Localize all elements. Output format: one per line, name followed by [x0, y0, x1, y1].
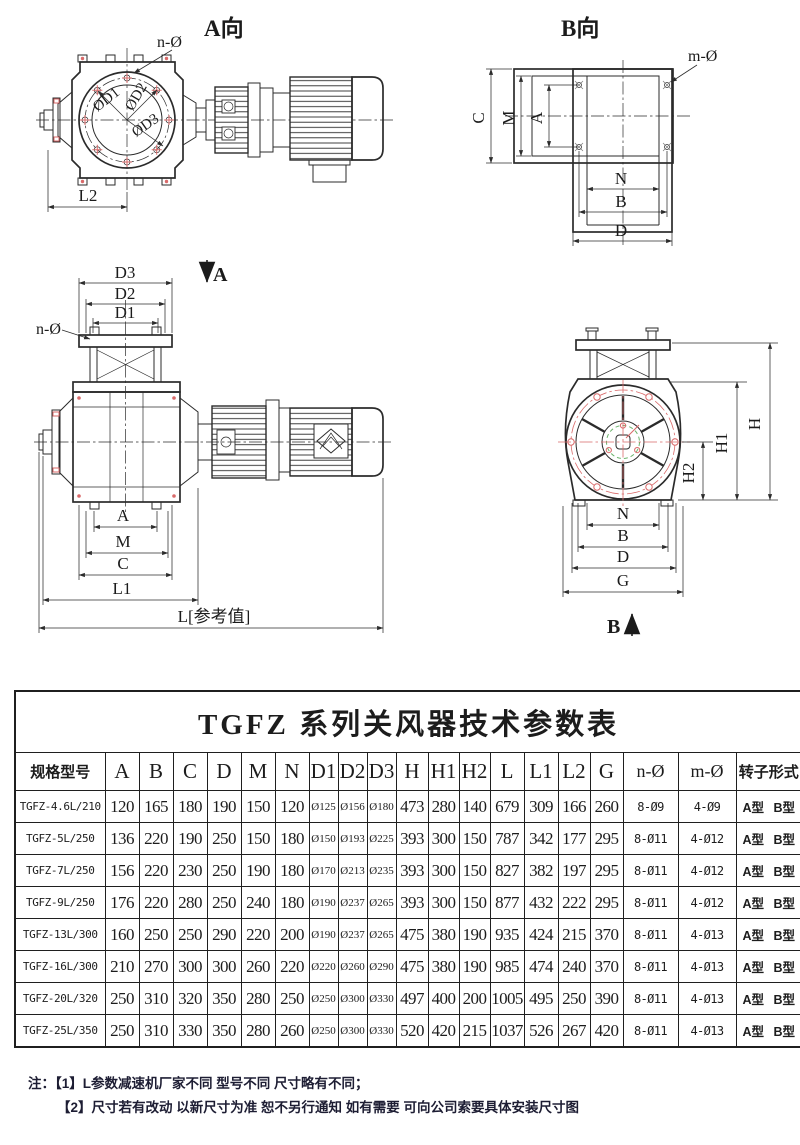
- side-view-drawing: H H1 H2 N B D G B: [558, 328, 778, 638]
- value-cell: 8-Ø11: [623, 823, 678, 855]
- dim-label-a-front: A: [117, 506, 130, 525]
- value-cell: 280: [173, 887, 207, 919]
- value-cell: 787: [490, 823, 524, 855]
- view-a-title: A向: [204, 15, 244, 41]
- value-cell: 4-Ø13: [678, 1015, 736, 1048]
- value-cell: 176: [105, 887, 139, 919]
- dim-label-l2: L2: [79, 186, 98, 205]
- value-cell: 877: [490, 887, 524, 919]
- value-cell: 474: [524, 951, 558, 983]
- value-cell: 220: [139, 855, 173, 887]
- column-header: L: [490, 753, 524, 791]
- value-cell: 190: [459, 951, 490, 983]
- value-cell: Ø290: [367, 951, 396, 983]
- front-view-drawing: A D3 D2 D1 n-Ø: [34, 260, 392, 633]
- motor-logo: [314, 424, 348, 458]
- dim-label-c-front: C: [117, 554, 128, 573]
- dim-label-d3: D3: [115, 263, 136, 282]
- value-cell: 200: [459, 983, 490, 1015]
- value-cell: 4-Ø9: [678, 791, 736, 823]
- value-cell: Ø260: [338, 951, 367, 983]
- value-cell: 8-Ø11: [623, 951, 678, 983]
- value-cell: 4-Ø13: [678, 983, 736, 1015]
- value-cell: 165: [139, 791, 173, 823]
- note-2: 【2】尺寸若有改动 以新尺寸为准 恕不另行通知 如有需要 可向公司索要具体安装尺…: [57, 1096, 579, 1120]
- value-cell: 280: [241, 983, 275, 1015]
- column-header: N: [275, 753, 309, 791]
- dim-label-m: M: [499, 110, 518, 125]
- value-cell: 310: [139, 1015, 173, 1048]
- dim-label-h1: H1: [712, 433, 731, 454]
- dim-label-m-holes: m-Ø: [688, 48, 717, 65]
- value-cell: 190: [173, 823, 207, 855]
- dim-label-l1: L1: [113, 579, 132, 598]
- table-title: TGFZ 系列关风器技术参数表: [15, 691, 800, 753]
- value-cell: 240: [241, 887, 275, 919]
- table-row: TGFZ-4.6L/210120165180190150120Ø125Ø156Ø…: [15, 791, 800, 823]
- value-cell: 260: [590, 791, 623, 823]
- value-cell: 370: [590, 919, 623, 951]
- value-cell: Ø300: [338, 983, 367, 1015]
- value-cell: 1037: [490, 1015, 524, 1048]
- value-cell: 150: [241, 791, 275, 823]
- section-a-mark: A: [213, 264, 228, 286]
- value-cell: A型 B型: [736, 951, 800, 983]
- dim-label-a: A: [527, 111, 546, 124]
- datasheet-page: A向 ØD1 ØD2 ØD3 n-Ø: [0, 0, 800, 1145]
- value-cell: Ø265: [367, 887, 396, 919]
- value-cell: 390: [590, 983, 623, 1015]
- value-cell: 300: [428, 887, 459, 919]
- value-cell: 380: [428, 951, 459, 983]
- column-header: L1: [524, 753, 558, 791]
- value-cell: 150: [459, 855, 490, 887]
- value-cell: 140: [459, 791, 490, 823]
- column-header: H1: [428, 753, 459, 791]
- value-cell: 827: [490, 855, 524, 887]
- value-cell: A型 B型: [736, 791, 800, 823]
- value-cell: 166: [558, 791, 590, 823]
- value-cell: Ø180: [367, 791, 396, 823]
- table-row: TGFZ-25L/350250310330350280260Ø250Ø300Ø3…: [15, 1015, 800, 1048]
- model-cell: TGFZ-9L/250: [15, 887, 105, 919]
- value-cell: Ø300: [338, 1015, 367, 1048]
- dim-label-b-side: B: [617, 526, 628, 545]
- column-header: D1: [309, 753, 338, 791]
- value-cell: 420: [428, 1015, 459, 1048]
- table-title-row: TGFZ 系列关风器技术参数表: [15, 691, 800, 753]
- table-header-row: 规格型号ABCDMND1D2D3HH1H2LL1L2Gn-Øm-Ø转子形式: [15, 753, 800, 791]
- value-cell: 136: [105, 823, 139, 855]
- value-cell: 295: [590, 823, 623, 855]
- value-cell: 4-Ø12: [678, 887, 736, 919]
- column-header: C: [173, 753, 207, 791]
- value-cell: Ø225: [367, 823, 396, 855]
- value-cell: 280: [428, 791, 459, 823]
- value-cell: 350: [207, 1015, 241, 1048]
- value-cell: 295: [590, 855, 623, 887]
- value-cell: 250: [558, 983, 590, 1015]
- value-cell: 220: [139, 887, 173, 919]
- value-cell: 475: [396, 951, 428, 983]
- value-cell: 393: [396, 855, 428, 887]
- value-cell: 520: [396, 1015, 428, 1048]
- notes-section: 注：【1】L参数减速机厂家不同 型号不同 尺寸略有不同； 【2】尺寸若有改动 以…: [28, 1072, 579, 1120]
- value-cell: 4-Ø13: [678, 951, 736, 983]
- value-cell: 400: [428, 983, 459, 1015]
- value-cell: 190: [207, 791, 241, 823]
- value-cell: A型 B型: [736, 1015, 800, 1048]
- dim-label-d-side: D: [617, 547, 629, 566]
- value-cell: Ø237: [338, 919, 367, 951]
- value-cell: 197: [558, 855, 590, 887]
- value-cell: 177: [558, 823, 590, 855]
- column-header: H: [396, 753, 428, 791]
- value-cell: 220: [139, 823, 173, 855]
- value-cell: 150: [459, 887, 490, 919]
- value-cell: 220: [241, 919, 275, 951]
- value-cell: 679: [490, 791, 524, 823]
- value-cell: A型 B型: [736, 855, 800, 887]
- dim-label-l-ref: L[参考值]: [178, 607, 251, 626]
- notes-prefix: 注：: [28, 1076, 55, 1091]
- value-cell: 300: [173, 951, 207, 983]
- value-cell: 309: [524, 791, 558, 823]
- column-header: G: [590, 753, 623, 791]
- dim-label-h2: H2: [679, 463, 698, 484]
- dim-label-m-front: M: [115, 532, 130, 551]
- value-cell: 424: [524, 919, 558, 951]
- model-cell: TGFZ-4.6L/210: [15, 791, 105, 823]
- value-cell: 267: [558, 1015, 590, 1048]
- value-cell: 250: [207, 823, 241, 855]
- value-cell: 985: [490, 951, 524, 983]
- value-cell: 120: [105, 791, 139, 823]
- value-cell: Ø170: [309, 855, 338, 887]
- value-cell: A型 B型: [736, 887, 800, 919]
- view-b-title: B向: [561, 15, 599, 41]
- value-cell: 250: [105, 1015, 139, 1048]
- section-b-mark: B: [607, 616, 620, 638]
- dim-label-d1: D1: [115, 303, 136, 322]
- table-row: TGFZ-7L/250156220230250190180Ø170Ø213Ø23…: [15, 855, 800, 887]
- value-cell: Ø250: [309, 1015, 338, 1048]
- dim-label-n-side: N: [617, 504, 629, 523]
- column-header: L2: [558, 753, 590, 791]
- model-cell: TGFZ-5L/250: [15, 823, 105, 855]
- value-cell: 473: [396, 791, 428, 823]
- note-1-text: 【1】L参数减速机厂家不同 型号不同 尺寸略有不同；: [55, 1076, 369, 1091]
- column-header: m-Ø: [678, 753, 736, 791]
- value-cell: Ø237: [338, 887, 367, 919]
- table-body: TGFZ-4.6L/210120165180190150120Ø125Ø156Ø…: [15, 791, 800, 1048]
- value-cell: 330: [173, 1015, 207, 1048]
- value-cell: 260: [241, 951, 275, 983]
- value-cell: 320: [173, 983, 207, 1015]
- column-header: D2: [338, 753, 367, 791]
- value-cell: 180: [275, 887, 309, 919]
- value-cell: 180: [275, 823, 309, 855]
- dim-label-n-holes: n-Ø: [157, 34, 182, 51]
- value-cell: 300: [428, 855, 459, 887]
- dim-label-n: N: [615, 169, 627, 188]
- view-b-drawing: B向 C M A N B D m-Ø: [469, 15, 717, 246]
- value-cell: 495: [524, 983, 558, 1015]
- value-cell: 215: [459, 1015, 490, 1048]
- value-cell: 380: [428, 919, 459, 951]
- value-cell: 250: [207, 855, 241, 887]
- note-1: 注：【1】L参数减速机厂家不同 型号不同 尺寸略有不同；: [28, 1072, 579, 1096]
- value-cell: Ø250: [309, 983, 338, 1015]
- value-cell: 4-Ø12: [678, 823, 736, 855]
- technical-drawings: A向 ØD1 ØD2 ØD3 n-Ø: [0, 0, 800, 690]
- dim-label-h: H: [745, 418, 764, 430]
- dim-label-d: D: [615, 221, 627, 240]
- value-cell: A型 B型: [736, 983, 800, 1015]
- value-cell: 150: [459, 823, 490, 855]
- column-header: A: [105, 753, 139, 791]
- value-cell: 270: [139, 951, 173, 983]
- value-cell: Ø150: [309, 823, 338, 855]
- dim-label-g: G: [617, 571, 629, 590]
- column-header: 转子形式: [736, 753, 800, 791]
- column-header: M: [241, 753, 275, 791]
- parameters-table: TGFZ 系列关风器技术参数表 规格型号ABCDMND1D2D3HH1H2LL1…: [14, 690, 800, 1048]
- view-a-drawing: A向 ØD1 ØD2 ØD3 n-Ø: [36, 15, 396, 212]
- value-cell: 8-Ø9: [623, 791, 678, 823]
- value-cell: Ø190: [309, 919, 338, 951]
- value-cell: 420: [590, 1015, 623, 1048]
- dim-label-n-holes-front: n-Ø: [36, 321, 61, 338]
- value-cell: 160: [105, 919, 139, 951]
- model-cell: TGFZ-16L/300: [15, 951, 105, 983]
- value-cell: 1005: [490, 983, 524, 1015]
- value-cell: 250: [173, 919, 207, 951]
- value-cell: 290: [207, 919, 241, 951]
- value-cell: 250: [139, 919, 173, 951]
- value-cell: Ø330: [367, 1015, 396, 1048]
- table-row: TGFZ-16L/300210270300300260220Ø220Ø260Ø2…: [15, 951, 800, 983]
- column-header: D3: [367, 753, 396, 791]
- table-row: TGFZ-20L/320250310320350280250Ø250Ø300Ø3…: [15, 983, 800, 1015]
- value-cell: 150: [241, 823, 275, 855]
- value-cell: 300: [207, 951, 241, 983]
- value-cell: 8-Ø11: [623, 1015, 678, 1048]
- value-cell: Ø265: [367, 919, 396, 951]
- dim-label-b: B: [615, 192, 626, 211]
- value-cell: Ø125: [309, 791, 338, 823]
- value-cell: 526: [524, 1015, 558, 1048]
- value-cell: 393: [396, 887, 428, 919]
- model-cell: TGFZ-7L/250: [15, 855, 105, 887]
- value-cell: 180: [275, 855, 309, 887]
- value-cell: Ø156: [338, 791, 367, 823]
- value-cell: 342: [524, 823, 558, 855]
- value-cell: 156: [105, 855, 139, 887]
- value-cell: Ø235: [367, 855, 396, 887]
- value-cell: 370: [590, 951, 623, 983]
- dim-label-d3: ØD3: [129, 111, 162, 141]
- column-header: n-Ø: [623, 753, 678, 791]
- value-cell: 220: [275, 951, 309, 983]
- model-cell: TGFZ-13L/300: [15, 919, 105, 951]
- column-header: D: [207, 753, 241, 791]
- column-header: H2: [459, 753, 490, 791]
- value-cell: 382: [524, 855, 558, 887]
- value-cell: 120: [275, 791, 309, 823]
- value-cell: 180: [173, 791, 207, 823]
- table-row: TGFZ-9L/250176220280250240180Ø190Ø237Ø26…: [15, 887, 800, 919]
- value-cell: 432: [524, 887, 558, 919]
- value-cell: 250: [105, 983, 139, 1015]
- model-cell: TGFZ-25L/350: [15, 1015, 105, 1048]
- value-cell: 190: [459, 919, 490, 951]
- value-cell: Ø330: [367, 983, 396, 1015]
- gearbox-a-view: [215, 87, 248, 153]
- dim-label-c: C: [469, 112, 488, 123]
- value-cell: 215: [558, 919, 590, 951]
- value-cell: 8-Ø11: [623, 983, 678, 1015]
- value-cell: Ø193: [338, 823, 367, 855]
- value-cell: 393: [396, 823, 428, 855]
- value-cell: 190: [241, 855, 275, 887]
- value-cell: 8-Ø11: [623, 887, 678, 919]
- value-cell: Ø190: [309, 887, 338, 919]
- value-cell: 295: [590, 887, 623, 919]
- value-cell: 210: [105, 951, 139, 983]
- value-cell: Ø220: [309, 951, 338, 983]
- dim-label-d2: D2: [115, 284, 136, 303]
- column-header: 规格型号: [15, 753, 105, 791]
- value-cell: 300: [428, 823, 459, 855]
- value-cell: 222: [558, 887, 590, 919]
- value-cell: 4-Ø13: [678, 919, 736, 951]
- value-cell: 4-Ø12: [678, 855, 736, 887]
- value-cell: 200: [275, 919, 309, 951]
- value-cell: A型 B型: [736, 823, 800, 855]
- table-row: TGFZ-5L/250136220190250150180Ø150Ø193Ø22…: [15, 823, 800, 855]
- value-cell: A型 B型: [736, 919, 800, 951]
- value-cell: 250: [207, 887, 241, 919]
- value-cell: 310: [139, 983, 173, 1015]
- motor-a-view: [290, 77, 352, 160]
- note-2-text: 【2】尺寸若有改动 以新尺寸为准 恕不另行通知 如有需要 可向公司索要具体安装尺…: [57, 1100, 579, 1115]
- value-cell: 935: [490, 919, 524, 951]
- value-cell: 475: [396, 919, 428, 951]
- table-row: TGFZ-13L/300160250250290220200Ø190Ø237Ø2…: [15, 919, 800, 951]
- value-cell: Ø213: [338, 855, 367, 887]
- value-cell: 350: [207, 983, 241, 1015]
- value-cell: 8-Ø11: [623, 855, 678, 887]
- model-cell: TGFZ-20L/320: [15, 983, 105, 1015]
- value-cell: 250: [275, 983, 309, 1015]
- value-cell: 230: [173, 855, 207, 887]
- value-cell: 497: [396, 983, 428, 1015]
- value-cell: 280: [241, 1015, 275, 1048]
- value-cell: 260: [275, 1015, 309, 1048]
- value-cell: 240: [558, 951, 590, 983]
- column-header: B: [139, 753, 173, 791]
- value-cell: 8-Ø11: [623, 919, 678, 951]
